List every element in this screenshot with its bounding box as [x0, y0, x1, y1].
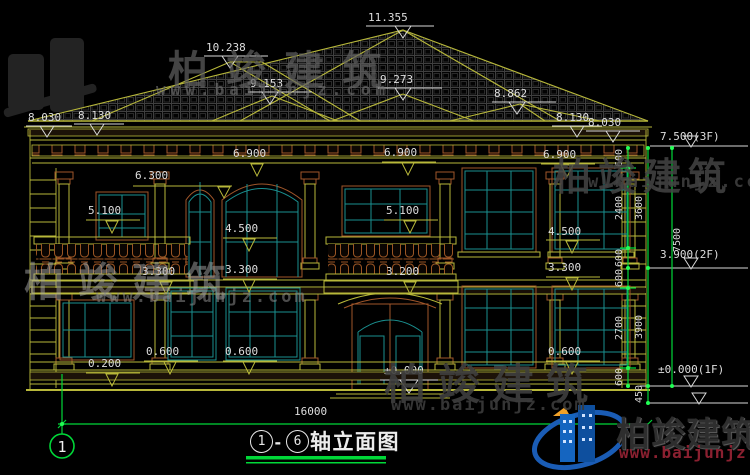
level-label-eave-left-inner: 8.130 — [78, 110, 111, 123]
level-label-plinth: 0.200 — [88, 358, 121, 371]
level-label-3f: 7.500(3F) — [660, 131, 720, 144]
drawing-title: 轴立面图 — [310, 426, 400, 456]
vdim-450: 450 — [635, 385, 645, 403]
level-label-ceiling-center: 6.900 — [384, 147, 417, 160]
title-dash: - — [273, 433, 283, 452]
level-label-sill2-right: 4.500 — [548, 226, 581, 239]
level-label-rail-left: 5.100 — [88, 205, 121, 218]
level-label-floor2-left: 3.300 — [142, 266, 175, 279]
vdim-2400: 2400 — [615, 196, 625, 220]
dim-total-width: 16000 — [294, 406, 327, 419]
level-label-ridge: 11.355 — [368, 12, 408, 25]
vdim-7500: 7500 — [673, 228, 683, 252]
watermark-logo-icon — [3, 38, 98, 118]
title-axis-end-bubble: 6 — [286, 430, 309, 453]
level-label-floor2-mid: 3.300 — [225, 264, 258, 277]
cad-elevation-drawing: 11.355 10.238 9.153 9.273 8.862 8.030 8.… — [0, 0, 750, 475]
level-label-sill2-left: 4.500 — [225, 223, 258, 236]
level-label-roof-center: 9.273 — [380, 74, 413, 87]
level-label-ceiling-left: 6.900 — [233, 148, 266, 161]
vdim-600-d: 600 — [615, 368, 625, 386]
vdim-600-b: 600 — [615, 249, 625, 267]
vdim-2700: 2700 — [615, 316, 625, 340]
level-label-eave-right-inner: 8.130 — [556, 112, 589, 125]
roof — [28, 30, 648, 121]
level-label-entry-arch: 3.200 — [386, 266, 419, 279]
level-label-window-head: 6.300 — [135, 170, 168, 183]
level-label-roof-right: 8.862 — [494, 88, 527, 101]
company-logo-url: www.baijunjz.com — [619, 443, 750, 462]
vdim-3900: 3900 — [635, 315, 645, 339]
axis-bubble-1: 1 — [50, 438, 74, 456]
vdim-600-c: 600 — [615, 269, 625, 287]
level-label-sill1-mid: 0.600 — [225, 346, 258, 359]
level-label-rail-center: 5.100 — [386, 205, 419, 218]
vdim-600-a: 600 — [615, 149, 625, 167]
level-label-1f: ±0.000(1F) — [658, 364, 724, 377]
vdim-3600: 3600 — [635, 196, 645, 220]
level-label-roof-left: 10.238 — [206, 42, 246, 55]
level-label-eave-right-outer: 8.030 — [588, 117, 621, 130]
level-label-2f: 3.900(2F) — [660, 249, 720, 262]
elevation-svg — [0, 0, 750, 475]
level-label-floor2-right: 3.300 — [548, 262, 581, 275]
level-label-ground: ±0.000 — [384, 365, 424, 378]
level-label-eave-left-outer: 8.030 — [28, 112, 61, 125]
floor-band — [30, 280, 646, 294]
level-label-ceiling-right: 6.900 — [543, 149, 576, 162]
level-label-sill1-left: 0.600 — [146, 346, 179, 359]
title-axis-start-bubble: 1 — [250, 430, 273, 453]
level-label-roof-left2: 9.153 — [250, 78, 283, 91]
level-label-sill1-right: 0.600 — [548, 346, 581, 359]
title-underline — [246, 456, 386, 464]
